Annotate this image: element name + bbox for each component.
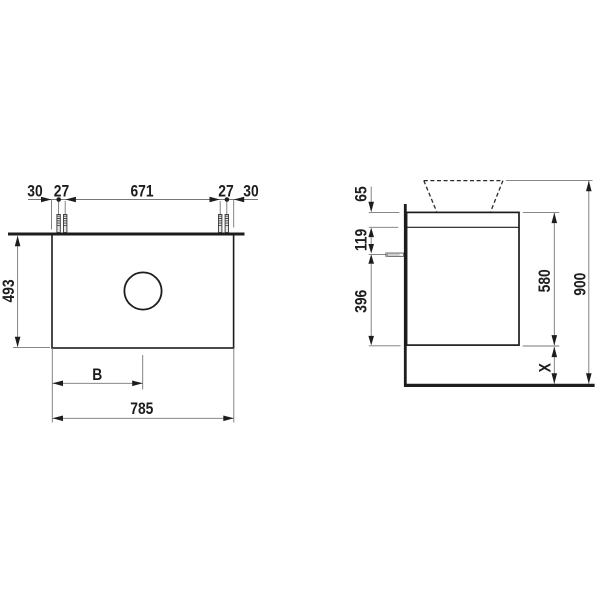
svg-text:27: 27: [54, 182, 69, 200]
svg-text:B: B: [92, 366, 102, 384]
svg-text:671: 671: [130, 182, 154, 200]
svg-text:785: 785: [130, 400, 154, 418]
svg-text:580: 580: [536, 269, 554, 292]
svg-text:65: 65: [352, 186, 370, 202]
svg-text:493: 493: [0, 279, 18, 302]
svg-text:119: 119: [352, 229, 370, 251]
svg-text:30: 30: [243, 182, 258, 200]
svg-text:30: 30: [27, 182, 42, 200]
svg-text:X: X: [536, 362, 554, 372]
svg-text:27: 27: [218, 182, 233, 200]
svg-text:396: 396: [352, 290, 370, 313]
svg-text:900: 900: [571, 273, 589, 296]
